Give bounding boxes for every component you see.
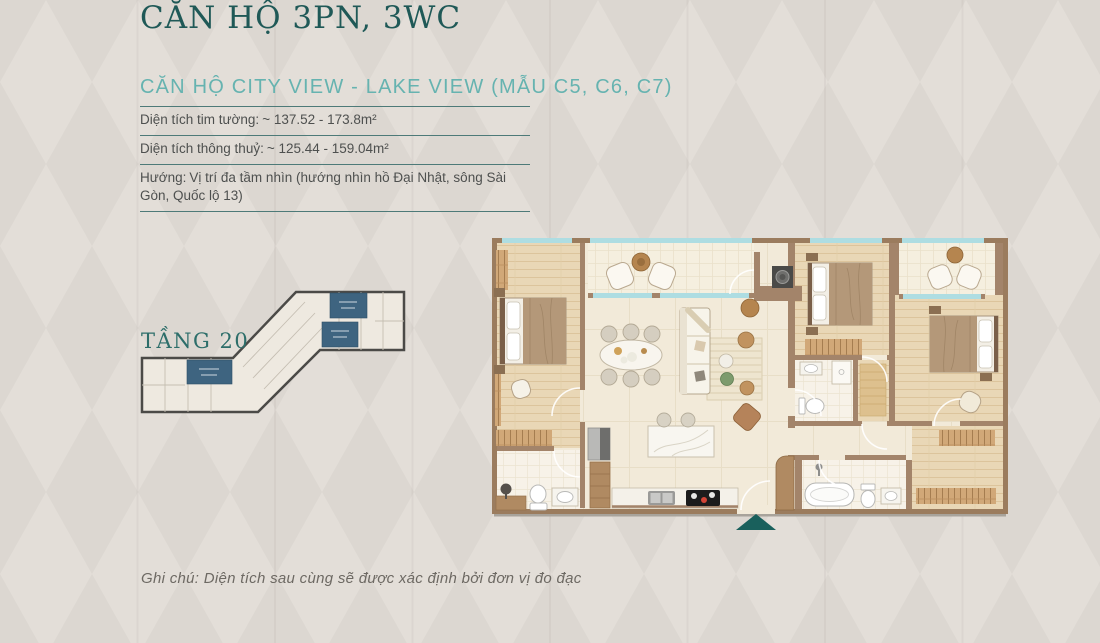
spec-table: Diện tích tim tường:~ 137.52 - 173.8m² D…	[140, 106, 530, 212]
plant	[721, 373, 734, 386]
side-table	[738, 332, 754, 348]
spec-row-gross-area: Diện tích tim tường:~ 137.52 - 173.8m²	[140, 107, 530, 136]
floor-plan	[492, 238, 1008, 534]
plinth-shadow	[494, 514, 1006, 517]
spec-value: ~ 137.52 - 173.8m²	[262, 112, 376, 127]
page-title: CĂN HỘ 3PN, 3WC	[140, 0, 461, 36]
shower	[832, 361, 851, 384]
spec-label: Diện tích thông thuỷ:	[140, 141, 264, 156]
brochure-page: CĂN HỘ 3PN, 3WC CĂN HỘ CITY VIEW - LAKE …	[0, 0, 1100, 643]
toilet	[861, 491, 875, 508]
spec-row-net-area: Diện tích thông thuỷ:~ 125.44 - 159.04m²	[140, 136, 530, 165]
entry-opening	[737, 505, 775, 514]
coffee-table	[719, 354, 733, 368]
floor-label: TẦNG 20	[141, 329, 249, 353]
footnote: Ghi chú: Diện tích sau cùng sẽ được xác …	[141, 570, 582, 587]
washer	[772, 266, 793, 288]
spec-label: Hướng:	[140, 170, 186, 185]
island	[648, 426, 714, 457]
toilet	[530, 485, 546, 503]
spec-row-direction: Hướng:Vị trí đa tầm nhìn (hướng nhìn hồ …	[140, 165, 530, 212]
page-subtitle: CĂN HỘ CITY VIEW - LAKE VIEW (MẪU C5, C6…	[140, 76, 673, 99]
bedroom2-furniture	[806, 253, 872, 335]
spec-value: ~ 125.44 - 159.04m²	[267, 141, 389, 156]
spec-value: Vị trí đa tầm nhìn (hướng nhìn hồ Đại Nh…	[140, 170, 506, 203]
spec-label: Diện tích tim tường:	[140, 112, 259, 127]
entry-cabinet	[776, 456, 794, 510]
